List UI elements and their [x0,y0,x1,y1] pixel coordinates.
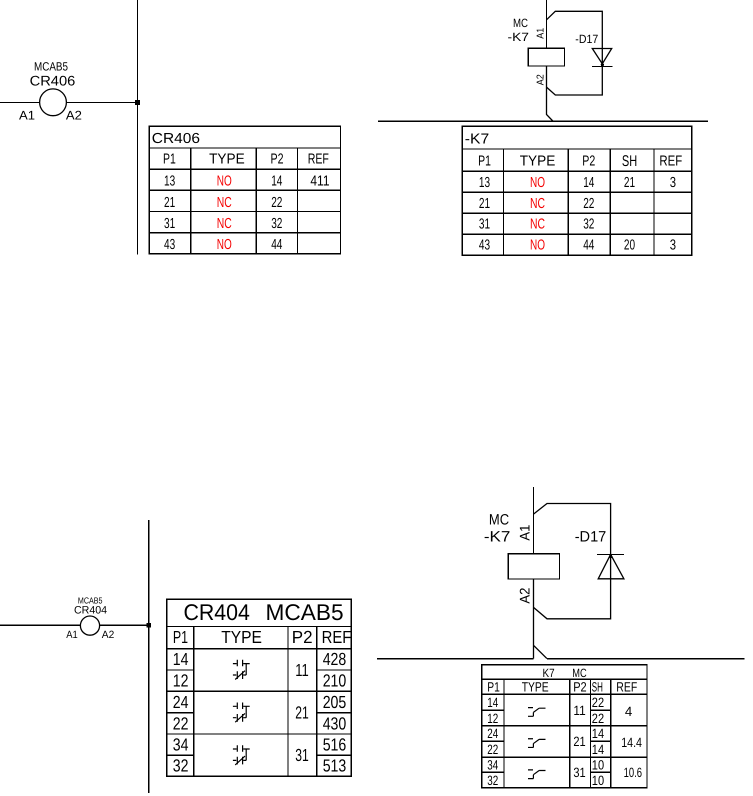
svg-text:NO: NO [530,238,545,254]
svg-text:TYPE: TYPE [209,152,245,168]
svg-text:32: 32 [271,216,282,232]
svg-text:-D17: -D17 [575,529,607,546]
svg-text:11: 11 [573,703,585,718]
svg-text:P1: P1 [487,680,500,695]
svg-text:31: 31 [295,745,309,765]
svg-text:4: 4 [625,704,633,719]
svg-text:14: 14 [592,742,605,757]
svg-text:K7: K7 [543,666,555,680]
svg-text:-K7: -K7 [484,528,511,545]
svg-text:MC: MC [489,512,509,529]
svg-text:43: 43 [479,238,490,254]
svg-text:22: 22 [592,695,604,710]
svg-text:34: 34 [173,735,189,755]
svg-text:43: 43 [164,237,175,253]
svg-text:NC: NC [530,196,545,212]
svg-text:P1: P1 [478,153,491,169]
svg-text:22: 22 [592,711,604,726]
svg-text:12: 12 [173,671,189,691]
svg-text:A1: A1 [516,524,532,540]
svg-text:NC: NC [217,216,232,232]
svg-text:205: 205 [323,692,347,712]
svg-text:14: 14 [487,695,498,710]
svg-text:CR404: CR404 [74,604,107,616]
svg-text:21: 21 [479,196,490,212]
svg-text:SH: SH [622,153,637,170]
svg-text:513: 513 [323,756,347,776]
svg-text:21: 21 [573,734,585,749]
svg-text:10: 10 [592,757,604,772]
svg-text:24: 24 [173,692,189,712]
svg-text:NO: NO [217,174,232,190]
svg-text:NC: NC [217,195,232,211]
svg-text:3: 3 [670,238,676,254]
svg-text:A2: A2 [102,629,115,641]
svg-text:32: 32 [583,217,594,233]
svg-text:14: 14 [583,175,594,191]
svg-text:REF: REF [322,627,352,647]
svg-text:-D17: -D17 [575,32,598,46]
svg-text:REF: REF [616,680,637,695]
svg-text:10.6: 10.6 [624,765,642,780]
svg-text:TYPE: TYPE [221,627,262,647]
svg-text:10: 10 [592,773,604,788]
svg-text:22: 22 [173,713,189,733]
svg-text:31: 31 [479,217,490,233]
svg-text:P2: P2 [292,627,313,647]
svg-text:P2: P2 [271,152,284,168]
svg-text:P1: P1 [163,152,176,168]
svg-text:21: 21 [624,175,635,191]
svg-text:32: 32 [487,773,498,788]
svg-text:31: 31 [573,765,585,780]
svg-text:14.4: 14.4 [621,735,642,750]
svg-text:22: 22 [271,195,282,211]
svg-text:21: 21 [295,703,309,723]
svg-text:A1: A1 [66,629,78,641]
svg-text:NC: NC [530,217,545,233]
svg-text:44: 44 [583,238,594,254]
svg-text:P2: P2 [582,153,595,169]
svg-text:13: 13 [479,175,490,191]
svg-text:P1: P1 [173,627,188,647]
svg-text:A1: A1 [535,27,546,38]
svg-text:TYPE: TYPE [522,680,549,695]
svg-text:21: 21 [164,195,175,211]
svg-text:14: 14 [592,726,605,741]
svg-text:-K7: -K7 [465,132,489,148]
svg-text:20: 20 [624,238,635,254]
svg-text:SH: SH [592,680,603,695]
svg-text:A2: A2 [516,587,532,603]
svg-text:14: 14 [173,649,189,669]
svg-text:516: 516 [323,735,347,755]
svg-text:A2: A2 [535,74,546,85]
svg-text:A2: A2 [66,109,82,123]
svg-text:A1: A1 [19,109,35,123]
svg-text:CR406: CR406 [30,72,76,88]
svg-text:12: 12 [487,711,498,726]
svg-text:44: 44 [271,237,282,253]
svg-text:CR406: CR406 [152,131,200,147]
svg-text:24: 24 [487,726,498,741]
svg-text:13: 13 [164,174,175,190]
svg-text:MC: MC [572,666,587,680]
svg-text:NO: NO [530,175,545,191]
svg-text:MCAB5: MCAB5 [34,59,68,73]
svg-text:428: 428 [323,649,347,669]
svg-text:TYPE: TYPE [520,153,556,169]
svg-text:CR404: CR404 [184,599,251,625]
svg-text:22: 22 [487,742,498,757]
svg-text:REF: REF [659,153,682,169]
svg-text:411: 411 [310,174,329,190]
svg-text:31: 31 [164,216,175,232]
svg-text:210: 210 [323,671,347,691]
svg-text:14: 14 [271,174,282,190]
svg-text:430: 430 [323,713,347,733]
svg-text:22: 22 [583,196,594,212]
svg-text:P2: P2 [573,680,587,695]
svg-text:MCAB5: MCAB5 [266,599,344,625]
svg-text:34: 34 [487,757,498,772]
svg-text:NO: NO [217,237,232,253]
svg-text:REF: REF [308,152,329,168]
svg-text:11: 11 [295,660,309,680]
svg-text:32: 32 [173,756,189,776]
svg-text:3: 3 [670,175,676,191]
svg-text:MC: MC [513,16,528,30]
svg-text:-K7: -K7 [508,30,530,44]
